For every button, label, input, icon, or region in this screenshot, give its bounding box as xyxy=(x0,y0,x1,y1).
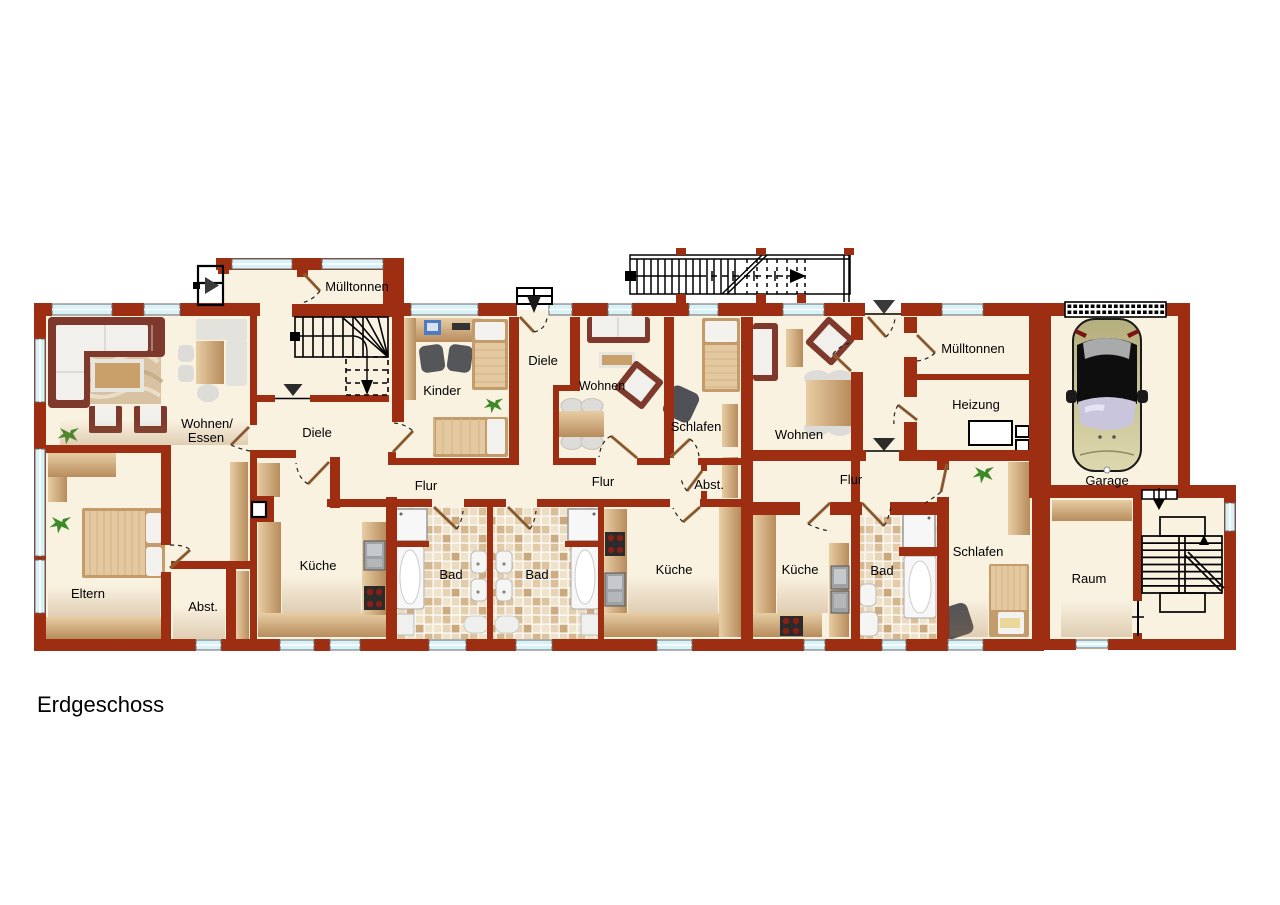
svg-text:Raum: Raum xyxy=(1072,571,1107,586)
svg-text:Wohnen: Wohnen xyxy=(579,379,625,393)
svg-text:Mülltonnen: Mülltonnen xyxy=(941,341,1005,356)
svg-text:Garage: Garage xyxy=(1085,473,1128,488)
svg-text:Heizung: Heizung xyxy=(952,397,1000,412)
svg-text:Flur: Flur xyxy=(592,474,615,489)
svg-text:Flur: Flur xyxy=(415,478,438,493)
svg-text:Küche: Küche xyxy=(656,562,693,577)
svg-text:Wohnen/: Wohnen/ xyxy=(181,416,233,431)
svg-text:Eltern: Eltern xyxy=(71,586,105,601)
svg-text:Bad: Bad xyxy=(525,567,548,582)
svg-text:Schlafen: Schlafen xyxy=(953,544,1004,559)
svg-text:Abst.: Abst. xyxy=(694,477,724,492)
svg-text:Mülltonnen: Mülltonnen xyxy=(325,279,389,294)
svg-text:Erdgeschoss: Erdgeschoss xyxy=(37,692,164,717)
svg-text:Abst.: Abst. xyxy=(188,599,218,614)
svg-text:Schlafen: Schlafen xyxy=(671,419,722,434)
svg-text:Küche: Küche xyxy=(782,562,819,577)
svg-text:Essen: Essen xyxy=(188,430,224,445)
svg-text:Kinder: Kinder xyxy=(423,383,461,398)
svg-text:Diele: Diele xyxy=(302,425,332,440)
svg-text:Diele: Diele xyxy=(528,353,558,368)
svg-text:Wohnen: Wohnen xyxy=(775,427,823,442)
svg-text:Flur: Flur xyxy=(840,472,863,487)
svg-text:Bad: Bad xyxy=(439,567,462,582)
svg-text:Küche: Küche xyxy=(300,558,337,573)
svg-text:Bad: Bad xyxy=(870,563,893,578)
